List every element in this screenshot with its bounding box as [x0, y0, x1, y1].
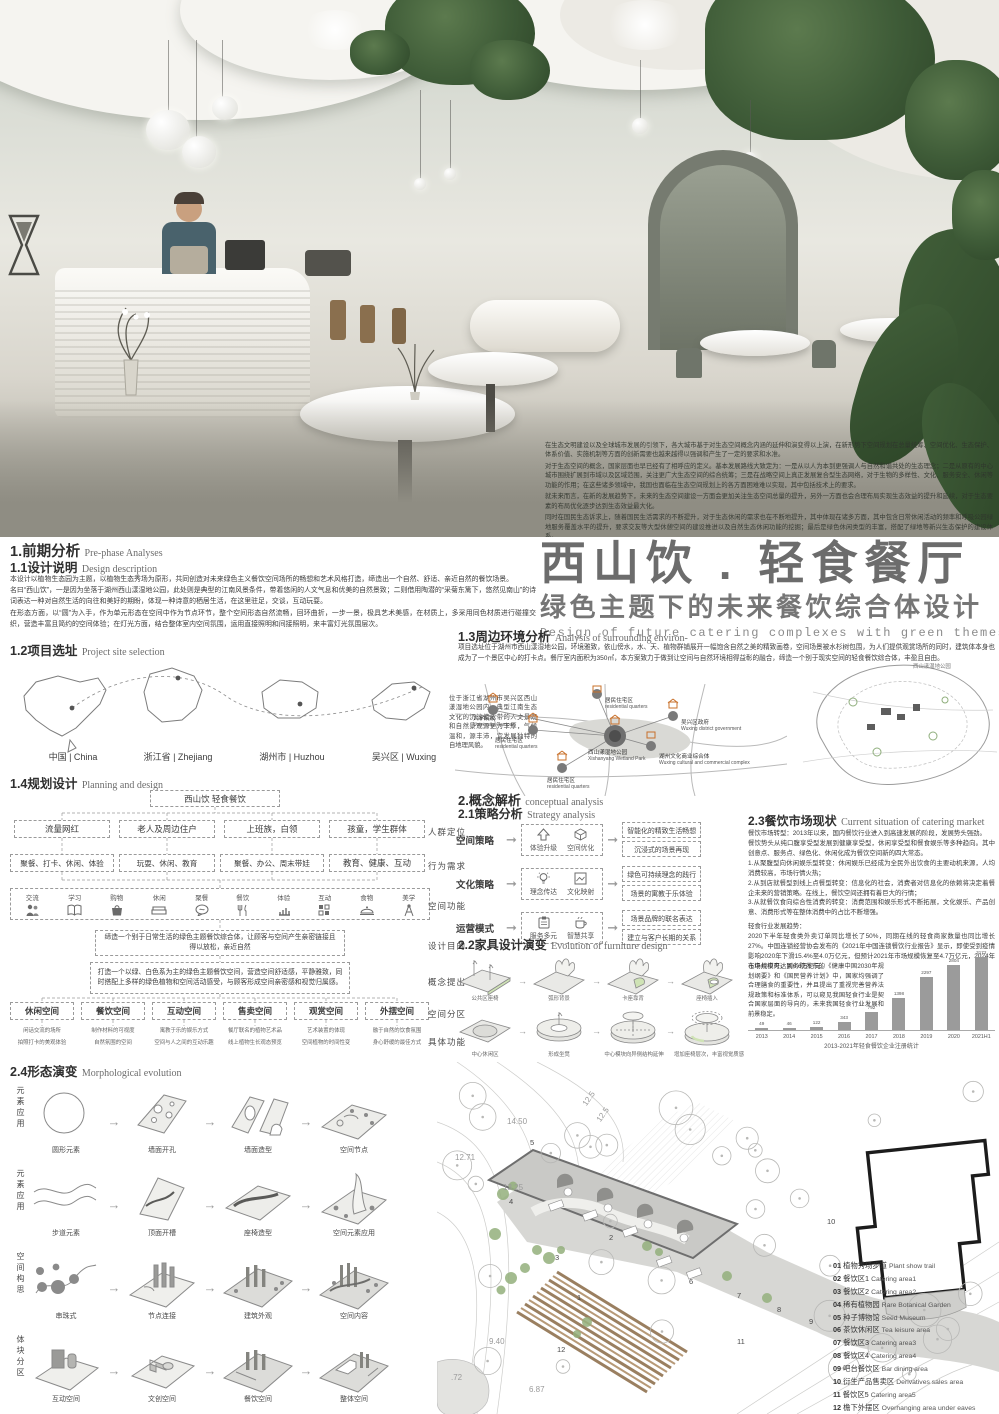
- morphology-row: 空间构思 串珠式→ 节点连接→ 建筑外观→ 空间内容: [10, 1246, 438, 1328]
- flow-concept: 打造一个以绿、白色系为主的绿色主题餐饮空间，营造空间舒适感，平静雅致，同时搭配上…: [90, 962, 350, 994]
- pendant-lamp: [182, 136, 216, 168]
- chair: [812, 340, 836, 368]
- plan-dimension: .72: [451, 1373, 463, 1382]
- morphology-caption: 顶面开槽: [148, 1228, 176, 1238]
- pendant-lamp: [444, 168, 456, 180]
- legend-num: 09: [833, 1364, 841, 1373]
- tree-center-dot: [661, 1331, 663, 1333]
- flow-behavior: 聚餐、打卡、休闲、体验: [10, 854, 114, 872]
- flow-zone: 售卖空间: [223, 1002, 287, 1020]
- function-item: 体验: [277, 892, 291, 916]
- sculptural-bench: [470, 300, 620, 352]
- morphology-step: 圆形元素: [26, 1087, 106, 1155]
- arrow-icon: →: [106, 1115, 122, 1128]
- chart-bar-value: 49: [759, 1021, 764, 1026]
- wood-stool: [330, 300, 346, 340]
- chart-x-tick: 2021H1: [972, 1034, 991, 1040]
- map-node-label: 吴兴区政府Wuxing district government: [681, 718, 741, 732]
- legend-num: 04: [833, 1300, 841, 1309]
- arrow-icon: →: [106, 1198, 122, 1211]
- strategy-row: 文化策略 ➞ 理念传达 文化映射 ➞ 绿色可持续理念的践行 场景的寓教于乐体验: [456, 866, 746, 901]
- heading-en: Morphological evolution: [82, 1068, 182, 1079]
- arrow-icon: →: [298, 1364, 314, 1377]
- tree-center-dot: [799, 1198, 801, 1200]
- node-en: University Campus: [473, 722, 515, 728]
- paragraph: 2.从到店就餐型到线上点餐型转变：信息化的社会，消费者对信息化的依赖将决定着餐企…: [748, 879, 995, 899]
- legend-item: 03 餐饮区2 Catering area2: [833, 1286, 997, 1299]
- function-label: 餐饮: [236, 892, 249, 902]
- legend-en: Seed Museum: [882, 1315, 926, 1322]
- tree-center-dot: [675, 1107, 677, 1109]
- plan-dimension: 12.5: [581, 1089, 598, 1107]
- legend-cn: 檐下外摆区: [843, 1403, 879, 1412]
- coffee-cup-icon: [574, 916, 588, 929]
- furniture-caption: 卡座靠背: [604, 996, 662, 1004]
- overlay-paragraph: 同时在国民生态诉求上，随着国民生活需求的不断提升，对于生态休闲的需求也在不断地提…: [545, 513, 993, 537]
- strategy-row: 空间策略 ➞ 体验升级 空间优化 ➞ 智能化的精致生活畅想 沉浸式的场景再现: [456, 822, 746, 857]
- tree-center-dot: [487, 1360, 489, 1362]
- chart-bar-value: 343: [840, 1015, 848, 1020]
- node-en: residential quarters: [495, 744, 538, 750]
- morphology-sketch: [316, 1336, 392, 1394]
- arrow-icon: ➞: [506, 921, 517, 934]
- tree-center-dot: [661, 1280, 663, 1282]
- morphology-step: 空间内容: [314, 1253, 394, 1321]
- paragraph: 1.从聚腹型向休闲娱乐型转变：休闲娱乐已经成为全民外出饮食的主要动机来源，人均消…: [748, 859, 995, 879]
- chart-bar-value: 46: [787, 1021, 792, 1026]
- strategy-outputs: 智能化的精致生活畅想 沉浸式的场景再现: [622, 822, 701, 857]
- legend-cn: 茶饮休闲区: [843, 1325, 879, 1334]
- legend-cn: 餐饮区1: [843, 1274, 869, 1283]
- morphology-step: 步道元素: [26, 1170, 106, 1238]
- morphology-caption: 圆形元素: [52, 1145, 80, 1155]
- section-2-4-heading: 2.4形态演变 Morphological evolution: [10, 1061, 182, 1081]
- method-label: 理念传达: [530, 886, 557, 896]
- legend-en: Catering area2: [871, 1289, 916, 1296]
- zone-detail: 餐厅联名的植物艺术品线上植物生长观态预览: [223, 1028, 287, 1047]
- morphology-caption: 空间内容: [340, 1311, 368, 1321]
- plan-dimension: 14.50: [507, 1117, 528, 1126]
- lamp-wire: [640, 60, 641, 120]
- strategy-output: 场景品牌的联名表达: [622, 910, 701, 926]
- strategy-label: 文化策略: [456, 877, 502, 891]
- strategy-outputs: 绿色可持续理念的践行 场景的寓教于乐体验: [622, 866, 701, 901]
- method-label: 文化映射: [567, 886, 594, 896]
- chart-x-tick: 2013: [756, 1034, 768, 1040]
- strategy-output: 智能化的精致生活畅想: [622, 822, 701, 838]
- map-node-label: 居民住宅区residential quarters: [495, 736, 538, 750]
- flow-group: 流量网红: [14, 820, 110, 838]
- design-description-text: 本设计以植物生态园为主题，以植物生态秀场为原形，共同创造对未来绿色主义餐饮空间场…: [10, 574, 536, 630]
- morphology-caption: 文创空间: [148, 1394, 176, 1404]
- tree-center-dot: [489, 1275, 491, 1277]
- furniture-caption: 中心模块向异侧结构延伸: [596, 1052, 672, 1060]
- tree-center-dot: [874, 1119, 876, 1121]
- overlay-paragraph: 对于生态空间的概念，国家层面也早已经有了相呼应的定义。基本发展路线大致定为：一是…: [545, 462, 993, 490]
- legend-item: 12 檐下外摆区 Overhanging area under eaves: [833, 1402, 997, 1414]
- heading-cn: 2.4形态演变: [10, 1065, 77, 1079]
- strategy-output: 绿色可持续理念的践行: [622, 866, 701, 882]
- tree-center-dot: [721, 1155, 723, 1157]
- node-en: Wuxing cultural and commercial complex: [659, 760, 750, 766]
- morphology-side-label: 体块分区: [10, 1335, 26, 1405]
- legend-en: Bar dining area: [882, 1366, 928, 1373]
- function-label: 购物: [110, 892, 123, 902]
- function-label: 学习: [68, 892, 81, 902]
- method-label: 体验升级: [530, 842, 557, 852]
- svg-text:→: →: [666, 1026, 675, 1036]
- compass-icon: [403, 904, 415, 917]
- morphology-step: 空间元素应用: [314, 1170, 394, 1238]
- morphology-caption: 互动空间: [52, 1394, 80, 1404]
- morphology-sketch: [316, 1170, 392, 1228]
- zone-detail-line: 融于自然的饮食氛围: [365, 1028, 429, 1036]
- morphology-step: 节点连接: [122, 1253, 202, 1321]
- tree-center-dot: [754, 1149, 756, 1151]
- furniture-caption: 形成坐凳: [530, 1052, 588, 1060]
- round-table: [700, 330, 810, 356]
- morphology-caption: 空间节点: [340, 1145, 368, 1155]
- hanging-plant: [350, 30, 410, 75]
- tree-center-dot: [746, 1137, 748, 1139]
- chat-bubble-icon: [195, 904, 209, 916]
- morphology-caption: 整体空间: [340, 1394, 368, 1404]
- flower-vase: [96, 300, 166, 410]
- node-cn: 居民住宅区: [495, 736, 538, 744]
- arrow-icon: →: [298, 1198, 314, 1211]
- morphology-caption: 餐饮空间: [244, 1394, 272, 1404]
- furniture-caption: 中心休闲区: [456, 1052, 514, 1060]
- legend-cn: 餐饮区5: [843, 1390, 869, 1399]
- morphology-step: 串珠式: [26, 1253, 106, 1321]
- morphology-caption: 墙面造型: [244, 1145, 272, 1155]
- flow-zone: 休闲空间: [10, 1002, 74, 1020]
- tree-center-dot: [475, 1183, 477, 1185]
- legend-num: 01: [833, 1261, 841, 1270]
- flow-zone: 外摆空间: [365, 1002, 429, 1020]
- morphology-step: 顶面开槽: [122, 1170, 202, 1238]
- morphology-sketch: [124, 1087, 200, 1145]
- function-item: 互动: [318, 892, 331, 916]
- book-icon: [67, 904, 82, 916]
- arrow-icon: →: [202, 1198, 218, 1211]
- tree-center-dot: [601, 1261, 603, 1263]
- zone-detail: 艺术装置的体现空间植物的时间性变: [294, 1028, 358, 1047]
- morphology-step: 墙面开孔: [122, 1087, 202, 1155]
- paragraph: 名曰“西山饮”，一是因为坐落于湖州西山漾湿地公园，此处则是典型的江南风景条件，带…: [10, 585, 536, 607]
- zone-detail-line: 空间植物的时间性变: [294, 1040, 358, 1048]
- function-item: 聚餐: [195, 892, 209, 916]
- tree-center-dot: [767, 1170, 769, 1172]
- bulb-icon: [537, 872, 550, 885]
- people-icon: [25, 904, 40, 916]
- chart-bar-value: 792: [868, 1005, 876, 1010]
- node-en: Wuxing district government: [681, 726, 741, 732]
- chart-bar-value: 2804: [949, 958, 959, 963]
- zone-detail-line: 空间与人之间的互动乐趣: [152, 1040, 216, 1048]
- method-label: 空间优化: [567, 842, 594, 852]
- plan-number: 1: [577, 1293, 581, 1302]
- bar-counter-texture: [55, 290, 310, 418]
- morphology-sketch: [124, 1336, 200, 1394]
- legend-en: Catering area4: [871, 1353, 916, 1360]
- pendant-lamp: [212, 96, 238, 120]
- legend-num: 12: [833, 1403, 841, 1412]
- map-label: 中国 | China: [28, 750, 118, 763]
- overlay-paragraph: 在生态文明建设以及全球城市发展的引领下，各大城市基于对生态空间概念内涵的延伸和演…: [545, 441, 993, 460]
- chart-x-tick: 2015: [811, 1034, 823, 1040]
- morphology-caption: 节点连接: [148, 1311, 176, 1321]
- function-label: 美学: [402, 892, 415, 902]
- lamp-wire: [196, 40, 197, 140]
- morphology-sketch: [28, 1336, 104, 1394]
- zone-detail-line: 自然氛围的空间: [81, 1040, 145, 1048]
- function-item: 购物: [110, 892, 124, 916]
- picture-frame-icon: [574, 872, 587, 885]
- zone-detail-line: 闲话交流的场所: [10, 1028, 74, 1036]
- heading-cn: 2.1策略分析: [458, 807, 523, 821]
- morphology-caption: 墙面开孔: [148, 1145, 176, 1155]
- furniture-evolution: →→→ 公共区座椅 弧形背景 卡座靠背 座椅插入 →→→ 中心休闲区 形成坐凳 …: [456, 952, 746, 1062]
- table-plant: [380, 330, 450, 400]
- method-item: 空间优化: [567, 828, 594, 852]
- morphology-caption: 串珠式: [56, 1311, 77, 1321]
- legend-en: Rare Botanical Garden: [882, 1302, 951, 1309]
- map-node-label: 居民住宅区residential quarters: [605, 696, 648, 710]
- legend-item: 09 吧台餐饮区 Bar dining area: [833, 1363, 997, 1376]
- chart-bar: [920, 977, 933, 1030]
- furniture-caption: 座椅插入: [678, 996, 736, 1004]
- legend-item: 08 餐饮区4 Catering area4: [833, 1350, 997, 1363]
- paragraph: 本设计以植物生态园为主题，以植物生态秀场为原形，共同创造对未来绿色主义餐饮空间场…: [10, 574, 536, 585]
- flow-root: 西山饮 轻食餐饮: [150, 790, 280, 807]
- chart-bar: [838, 1022, 851, 1030]
- barista-apron: [170, 246, 208, 274]
- tree-center-dot: [456, 1165, 458, 1167]
- aerial-map-sketch: [793, 652, 997, 794]
- overlay-paragraph: 就未来而言，在新的发展趋势下，未来的生态空间建设一方面会更加关注生态空间总量的提…: [545, 492, 993, 511]
- morphology-side-label: 元素应用: [10, 1086, 26, 1156]
- planning-flowchart: 西山饮 轻食餐饮 流量网红 老人及周边住户 上班族，白领 孩童，学生群体 聚餐、…: [10, 790, 430, 1058]
- morphology-step: 建筑外观: [218, 1253, 298, 1321]
- heading-cn: 2.2家具设计演变: [458, 938, 547, 952]
- morphology-sketch: [316, 1253, 392, 1311]
- morphology-step: 互动空间: [26, 1336, 106, 1404]
- tree-center-dot: [829, 1315, 831, 1317]
- function-item: 餐饮: [236, 892, 249, 917]
- chart-axis: [748, 1030, 995, 1031]
- chart-bar-value: 2297: [921, 970, 931, 975]
- heading-en: Evolution of furniture design: [551, 941, 667, 952]
- zone-detail: 融于自然的饮食氛围身心舒缓的最佳方式: [365, 1028, 429, 1047]
- site-plan-legend: 01 植物秀场步道 Plant show trail02 餐饮区1 Cateri…: [833, 1260, 997, 1414]
- section-2-1-heading: 2.1策略分析 Strategy analysis: [458, 805, 595, 823]
- legend-cn: 餐饮区2: [843, 1287, 869, 1296]
- chart-x-tick: 2018: [893, 1034, 905, 1040]
- flow-purpose: 缔造一个别于日常生活的绿色主题餐饮综合体，让顾客与空间产生亲密链接且得以放松，亲…: [95, 930, 345, 956]
- arrow-icon: →: [106, 1281, 122, 1294]
- heading-en: Current situation of catering market: [841, 817, 984, 828]
- legend-en: Derivatives sales area: [896, 1379, 963, 1386]
- morphology-sketch: [28, 1170, 104, 1228]
- paragraph: 餐饮势头从纯口腹享受型发展到健康享受型，休闲享受型和餐食娱乐等多种趋向。其中创意…: [748, 839, 995, 859]
- intro-overlay-text: 在生态文明建设以及全球城市发展的引领下，各大城市基于对生态空间概念内涵的延伸和演…: [545, 441, 993, 537]
- hanging-plant: [905, 60, 999, 180]
- lamp-wire: [420, 90, 421, 180]
- morphology-caption: 步道元素: [52, 1228, 80, 1238]
- legend-item: 07 餐饮区3 Catering area3: [833, 1337, 997, 1350]
- method-item: 文化映射: [567, 872, 594, 896]
- zone-detail: 寓教于乐的娱乐方式空间与人之间的互动乐趣: [152, 1028, 216, 1047]
- morphology-step: 文创空间: [122, 1336, 202, 1404]
- clipboard-icon: [538, 916, 550, 929]
- morphology-row: 体块分区 互动空间→ 文创空间→ 餐饮空间→ 整体空间: [10, 1329, 438, 1411]
- morphology-step: 空间节点: [314, 1087, 394, 1155]
- function-label: 互动: [318, 892, 331, 902]
- heading-cn: 2.3餐饮市场现状: [748, 814, 837, 828]
- pendant-lamp: [414, 178, 426, 190]
- legend-item: 01 植物秀场步道 Plant show trail: [833, 1260, 997, 1273]
- chart-bar: [892, 998, 905, 1030]
- plan-number: 9: [809, 1317, 813, 1326]
- legend-num: 10: [833, 1377, 841, 1386]
- zone-detail-line: 拍照打卡的美观体验: [10, 1040, 74, 1048]
- legend-num: 08: [833, 1351, 841, 1360]
- node-en: residential quarters: [605, 704, 648, 710]
- tree-center-dot: [610, 1220, 612, 1222]
- flow-behavior: 教育、健康、互动: [329, 854, 425, 872]
- plan-number: 8: [777, 1305, 781, 1314]
- map-node-label: 湖州文化商业综合体Wuxing cultural and commercial …: [659, 752, 750, 766]
- method-item: 理念传达: [530, 872, 557, 896]
- pos-screen: [225, 240, 265, 270]
- legend-item: 06 茶饮休闲区 Tea leisure area: [833, 1324, 997, 1337]
- function-label: 体验: [277, 892, 290, 902]
- strategy-output: 场景的寓教于乐体验: [622, 885, 701, 901]
- lamp-wire: [450, 100, 451, 170]
- node-cn: 吴兴区政府: [681, 718, 741, 726]
- map-node-label: 大学院校University Campus: [473, 714, 515, 728]
- hanging-plant: [470, 40, 550, 100]
- chart-caption: 2013-2021年轻食餐饮企业注册统计: [748, 1041, 995, 1050]
- morphology-sketch: [220, 1170, 296, 1228]
- morphology-sketch: [124, 1170, 200, 1228]
- furniture-caption: 公共区座椅: [456, 996, 514, 1004]
- chair: [676, 348, 702, 378]
- morphology-step: 整体空间: [314, 1336, 394, 1404]
- legend-en: Catering area5: [871, 1392, 916, 1399]
- heading-en: Strategy analysis: [527, 810, 595, 821]
- plan-number: 12: [557, 1345, 565, 1354]
- morphology-side-label: 元素应用: [10, 1169, 26, 1239]
- legend-cn: 餐饮区3: [843, 1338, 869, 1347]
- flow-behavior: 玩耍、休闲、教育: [119, 854, 215, 872]
- surroundings-map: 大学院校University Campus 居民住宅区residential q…: [455, 684, 787, 796]
- legend-cn: 餐饮区4: [843, 1351, 869, 1360]
- chart-x-tick: 2017: [866, 1034, 878, 1040]
- chart-bar-value: 3172: [976, 950, 986, 955]
- zone-detail-line: 艺术装置的体现: [294, 1028, 358, 1036]
- arrow-icon: ➞: [607, 833, 618, 846]
- chart-icon: [277, 904, 291, 916]
- heading-cn: 1.1设计说明: [10, 561, 77, 575]
- tree-center-dot: [829, 1265, 831, 1267]
- arrow-icon: →: [106, 1364, 122, 1377]
- furniture-row2-sketch: →→→: [456, 1008, 746, 1050]
- plan-number: 6: [689, 1277, 693, 1286]
- svg-text:→: →: [518, 1026, 527, 1036]
- legend-num: 11: [833, 1390, 841, 1399]
- zone-detail: 制作材料的可视度自然氛围的空间: [81, 1028, 145, 1047]
- map-label: 吴兴区 | Wuxing: [354, 750, 454, 763]
- morphology-sketch: [28, 1253, 104, 1311]
- morphology-step: 餐饮空间: [218, 1336, 298, 1404]
- plan-number: 4: [509, 1197, 513, 1206]
- plan-number: 11: [737, 1337, 745, 1346]
- morphology-sketch: [220, 1336, 296, 1394]
- function-item: 学习: [67, 892, 82, 916]
- morphology-step: 墙面造型: [218, 1087, 298, 1155]
- hourglass: [6, 212, 42, 278]
- barista-hair: [174, 192, 204, 204]
- plan-dimension: 13.25: [503, 1183, 524, 1192]
- lamp-wire: [222, 40, 223, 100]
- cloche-icon: [359, 904, 375, 916]
- node-cn: 湖州文化商业综合体: [659, 752, 750, 760]
- coffee-machine: [305, 250, 351, 276]
- morphology-caption: 座椅造型: [244, 1228, 272, 1238]
- node-en: Xishanyang Wetland Park: [588, 756, 645, 762]
- morphology-sketch: [316, 1087, 392, 1145]
- function-label: 休闲: [153, 892, 166, 902]
- pendant-lamp: [632, 118, 648, 134]
- legend-num: 07: [833, 1338, 841, 1347]
- arrow-icon: →: [298, 1115, 314, 1128]
- plan-number: 5: [530, 1138, 534, 1147]
- aerial-site-map: 西山漾湿地公园: [793, 652, 997, 794]
- chart-x-tick: 2019: [920, 1034, 932, 1040]
- zone-detail-line: 制作材料的可视度: [81, 1028, 145, 1036]
- flow-zone: 餐饮空间: [81, 1002, 145, 1020]
- poster-title: 西山饮 . 轻食餐厅: [540, 539, 997, 587]
- function-item: 休闲: [151, 892, 167, 916]
- heading-cn: 1.4规划设计: [10, 777, 77, 791]
- tree-center-dot: [606, 1144, 608, 1146]
- legend-en: Tea leisure area: [882, 1327, 930, 1334]
- chart-bar: [947, 965, 960, 1030]
- legend-num: 02: [833, 1274, 841, 1283]
- legend-item: 11 餐饮区5 Catering area5: [833, 1389, 997, 1402]
- furniture-caption: 增加座椅层次，丰富视觉质感: [672, 1052, 746, 1060]
- flow-group: 孩童，学生群体: [329, 820, 425, 838]
- plan-number: 10: [827, 1217, 835, 1226]
- flow-behavior: 聚餐、办公、周末带娃: [220, 854, 324, 872]
- legend-item: 02 餐饮区1 Catering area1: [833, 1273, 997, 1286]
- cube-icon: [574, 828, 587, 841]
- flow-group: 老人及周边住户: [119, 820, 215, 838]
- design-poster: 在生态文明建设以及全球城市发展的引领下，各大城市基于对生态空间概念内涵的延伸和演…: [0, 0, 999, 1414]
- wood-stool: [360, 305, 375, 343]
- section-2-3-heading: 2.3餐饮市场现状 Current situation of catering …: [748, 812, 984, 830]
- legend-en: Catering area1: [871, 1276, 916, 1283]
- morphology-row: 元素应用 圆形元素→ 墙面开孔→ 墙面造型→ 空间节点: [10, 1080, 438, 1162]
- zone-detail-line: 线上植物生长观态预览: [223, 1040, 287, 1048]
- plan-dimension: 12.71: [455, 1153, 476, 1162]
- tree-center-dot: [972, 1091, 974, 1093]
- strategy-analysis: 空间策略 ➞ 体验升级 空间优化 ➞ 智能化的精致生活畅想 沉浸式的场景再现 文…: [456, 822, 746, 945]
- strategy-label: 空间策略: [456, 833, 502, 847]
- arrow-icon: →: [202, 1364, 218, 1377]
